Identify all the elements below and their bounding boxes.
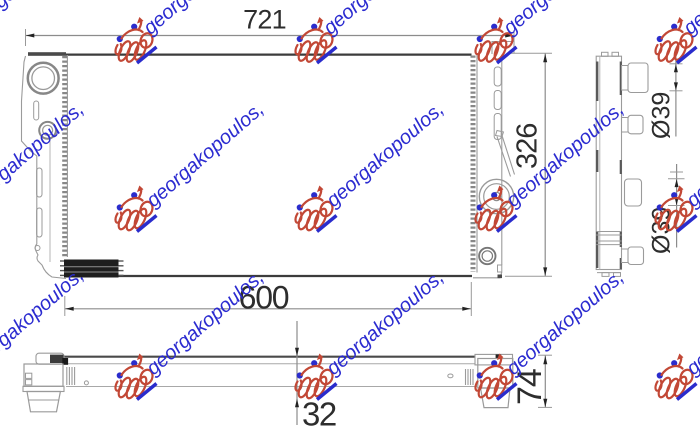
svg-text:721: 721 bbox=[243, 5, 286, 35]
svg-text:32: 32 bbox=[302, 396, 336, 433]
svg-text:326: 326 bbox=[512, 124, 544, 169]
svg-text:Ø39: Ø39 bbox=[648, 92, 676, 139]
